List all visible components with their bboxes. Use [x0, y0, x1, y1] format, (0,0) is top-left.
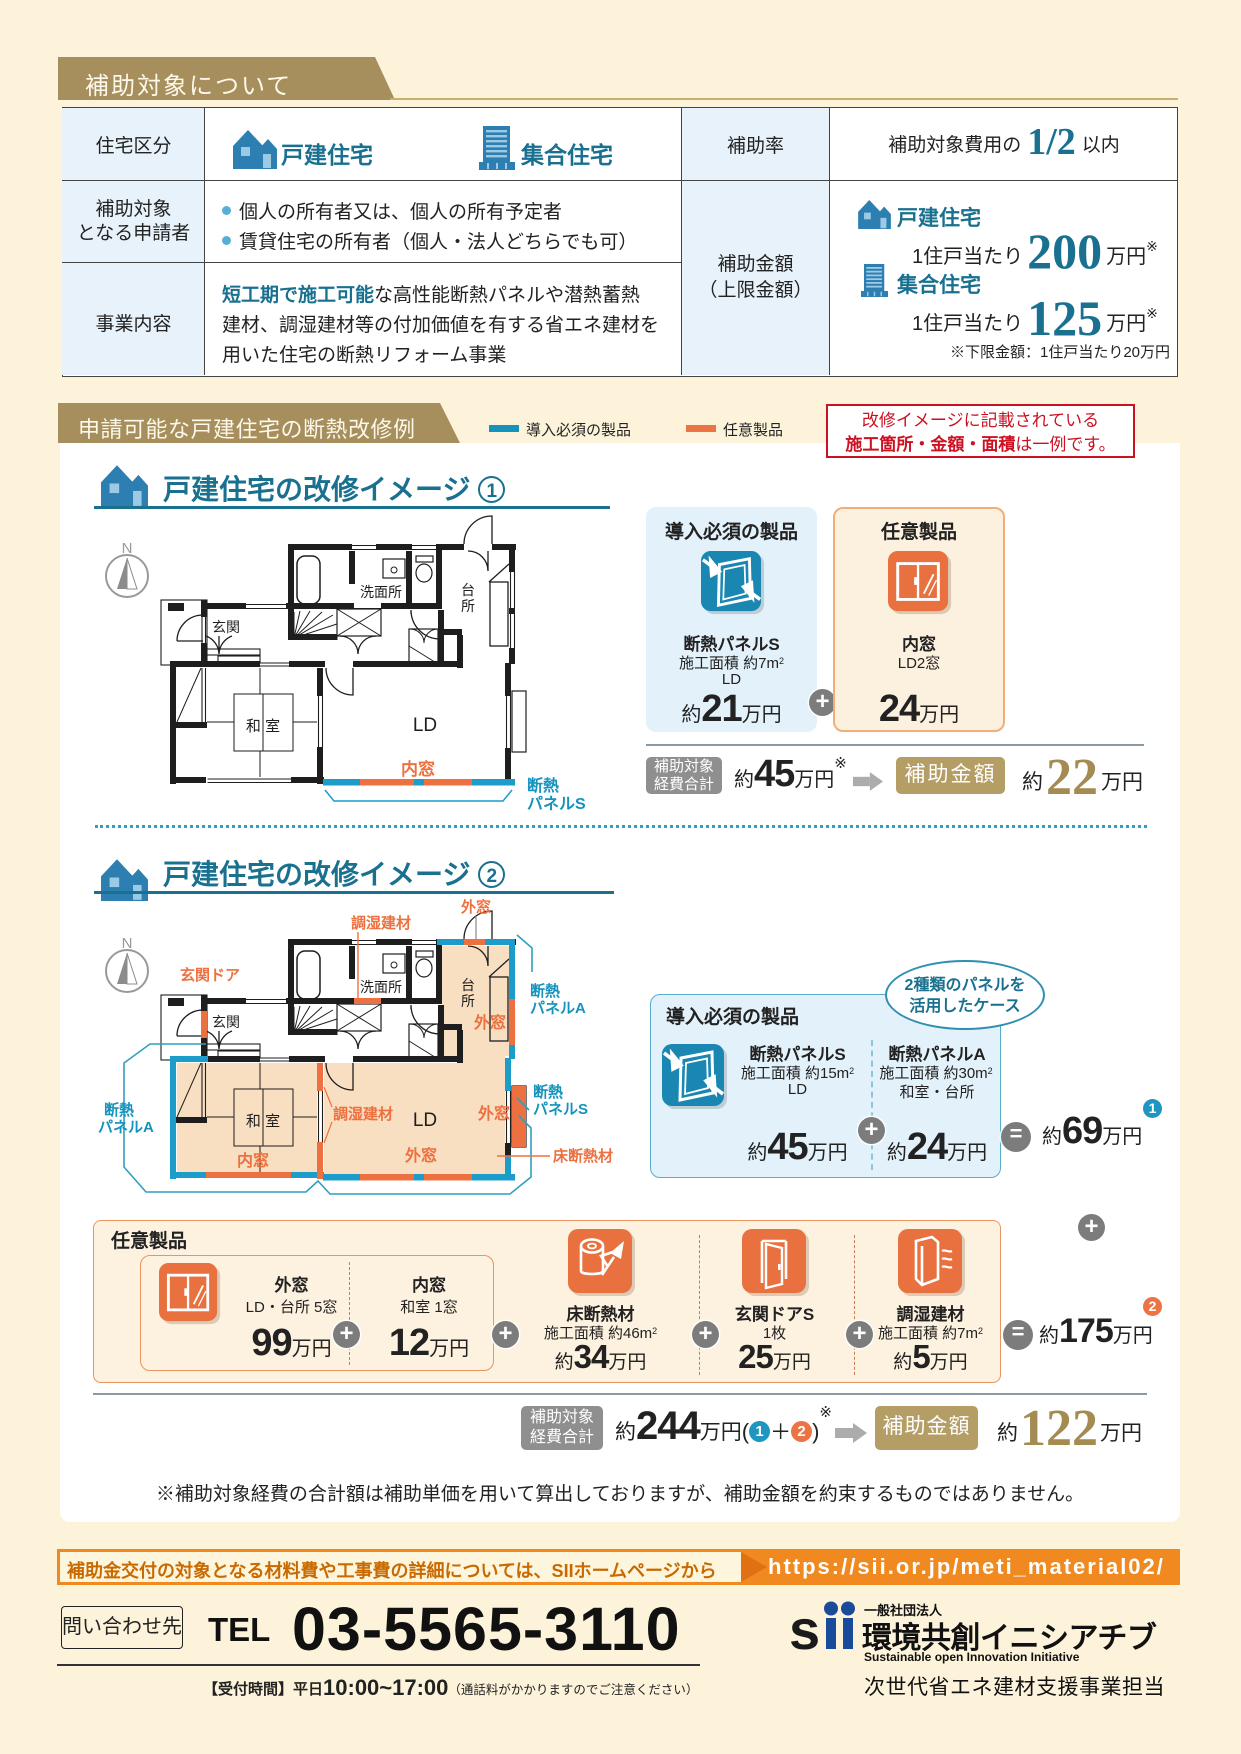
- svg-text:s: s: [791, 1601, 820, 1657]
- svg-text:断熱: 断熱: [527, 776, 559, 795]
- svg-text:内窓: 内窓: [401, 759, 435, 779]
- svg-text:内窓: 内窓: [237, 1151, 269, 1170]
- svg-text:断熱: 断熱: [104, 1101, 134, 1119]
- svg-text:調湿建材: 調湿建材: [351, 914, 411, 932]
- svg-text:断熱: 断熱: [533, 1083, 563, 1101]
- svg-text:断熱: 断熱: [530, 982, 560, 1000]
- svg-text:外窓: 外窓: [404, 1146, 437, 1165]
- svg-text:玄関ドア: 玄関ドア: [180, 966, 240, 984]
- svg-text:外窓: 外窓: [473, 1013, 506, 1032]
- svg-text:調湿建材: 調湿建材: [333, 1105, 393, 1123]
- svg-text:パネルA: パネルA: [98, 1119, 154, 1136]
- svg-text:外窓: 外窓: [477, 1104, 510, 1123]
- svg-text:パネルS: パネルS: [527, 795, 586, 813]
- svg-text:パネルS: パネルS: [533, 1101, 588, 1118]
- svg-text:床断熱材: 床断熱材: [553, 1147, 613, 1165]
- svg-text:パネルA: パネルA: [530, 1000, 586, 1017]
- svg-text:外窓: 外窓: [460, 898, 491, 916]
